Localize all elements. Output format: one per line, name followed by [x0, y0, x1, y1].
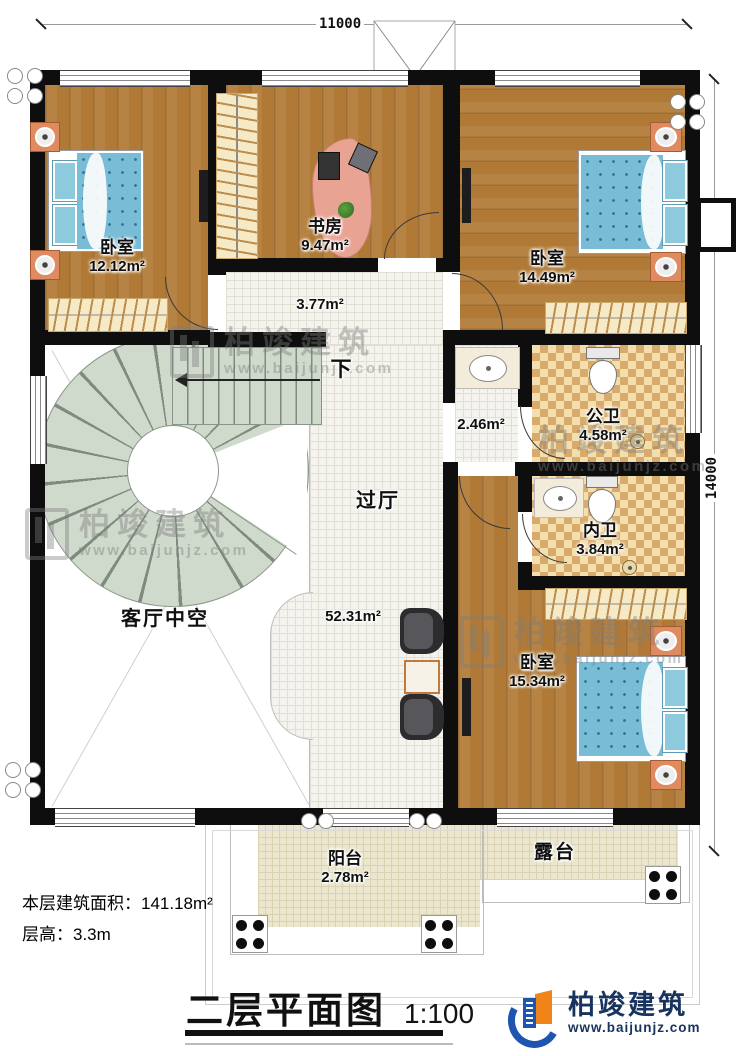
company-url: www.baijunjz.com	[568, 1020, 701, 1035]
room-name: 内卫	[542, 520, 658, 541]
wall-column-pair	[300, 812, 334, 830]
company-logo-icon	[508, 986, 560, 1040]
room-label-bedroom2: 卧室 14.49m²	[487, 248, 607, 288]
window	[685, 345, 702, 433]
bed-icon	[578, 150, 686, 254]
room-label-terrace: 露台	[505, 841, 605, 865]
title-underline-thick	[185, 1030, 443, 1036]
company-logo: 柏竣建筑 www.baijunjz.com	[508, 986, 701, 1040]
room-area: 12.12m²	[57, 258, 177, 277]
toilet-icon	[586, 347, 620, 393]
company-name: 柏竣建筑	[568, 991, 701, 1019]
staircase-straight-flight	[172, 347, 322, 425]
tv-icon	[199, 170, 208, 222]
corner-column	[3, 760, 43, 800]
wall	[443, 476, 458, 808]
stair-direction-arrow	[168, 373, 187, 387]
window	[497, 808, 613, 827]
pillow-icon	[663, 712, 687, 752]
room-label-study: 书房 9.47m²	[265, 216, 385, 256]
room-area: 9.47m²	[265, 237, 385, 256]
nightstand-icon	[30, 250, 60, 280]
balcony-door	[323, 808, 409, 827]
balcony-column	[232, 915, 268, 953]
terrace-column	[645, 866, 681, 904]
room-name: 卧室	[477, 652, 597, 673]
wall-column-pair	[408, 812, 442, 830]
computer-monitor-icon	[318, 152, 340, 180]
wardrobe-icon	[545, 588, 687, 620]
stair-direction-line	[184, 379, 320, 381]
room-name: 卧室	[487, 248, 607, 269]
area-label-hall: 52.31m²	[303, 608, 403, 627]
area-label-upper-hall: 3.77m²	[270, 296, 370, 315]
window	[55, 808, 195, 827]
window	[262, 70, 408, 87]
blanket-fold	[83, 153, 107, 249]
armchair-icon	[400, 694, 444, 740]
corner-column	[668, 92, 706, 132]
floor-plan-page: 11000 14000	[0, 0, 750, 1056]
wardrobe-icon	[48, 298, 168, 332]
wall	[518, 345, 532, 407]
pillow-icon	[53, 161, 77, 201]
room-label-bedroom1: 卧室 12.12m²	[57, 237, 177, 277]
tv-icon	[462, 168, 471, 223]
wall	[208, 332, 326, 347]
balcony-column	[421, 915, 457, 953]
room-area: 3.84m²	[542, 541, 658, 560]
ground-terrace-outline-inner	[212, 830, 693, 998]
tv-icon	[462, 678, 471, 736]
room-name: 卧室	[57, 237, 177, 258]
vanity-counter	[455, 347, 520, 389]
drawing-title: 二层平面图	[186, 980, 386, 1034]
nightstand-icon	[650, 626, 682, 656]
wardrobe-icon	[216, 93, 258, 259]
room-area: 4.58m²	[545, 427, 661, 446]
wall	[443, 462, 458, 476]
window	[495, 70, 640, 87]
room-area: 2.78m²	[295, 869, 395, 888]
toilet-icon	[586, 476, 618, 520]
wall	[443, 85, 460, 272]
top-dimension-label: 11000	[316, 16, 364, 32]
wall	[30, 330, 210, 345]
wall	[685, 70, 700, 825]
blanket-fold	[641, 662, 665, 756]
room-name: 书房	[265, 216, 385, 237]
armchair-icon	[400, 608, 444, 654]
nightstand-icon	[30, 122, 60, 152]
drawing-scale: 1:100	[404, 998, 474, 1030]
floor-area-note: 本层建筑面积：141.18m²	[22, 889, 213, 914]
wall	[518, 562, 532, 576]
hall-void-boundary	[309, 738, 310, 808]
title-underline-thin	[185, 1043, 453, 1045]
room-label-ensuite-bath: 内卫 3.84m²	[542, 520, 658, 560]
wall	[443, 345, 455, 403]
washbasin-icon	[543, 486, 577, 511]
blanket-fold	[641, 155, 665, 249]
room-label-bedroom3: 卧室 15.34m²	[477, 652, 597, 692]
stair-down-label: 下	[326, 357, 356, 383]
wall	[226, 258, 378, 272]
wall	[515, 462, 700, 476]
room-label-living-void: 客厅中空	[95, 607, 235, 632]
room-label-balcony: 阳台 2.78m²	[295, 848, 395, 888]
pillow-icon	[663, 161, 687, 201]
pillow-icon	[663, 205, 687, 245]
vanity-counter	[534, 478, 584, 518]
wall	[518, 476, 532, 512]
pillow-icon	[663, 668, 687, 708]
room-area: 14.49m²	[487, 269, 607, 288]
wardrobe-icon	[545, 302, 687, 334]
floor-drain-icon	[622, 560, 637, 575]
washbasin-icon	[469, 355, 507, 382]
right-wall-niche	[696, 198, 736, 252]
staircase-inner-well	[127, 425, 219, 517]
area-label-vanity: 2.46m²	[431, 416, 531, 435]
room-label-public-bath: 公卫 4.58m²	[545, 406, 661, 446]
side-table-icon	[404, 660, 440, 694]
floor-height-note: 层高：3.3m	[22, 920, 111, 945]
room-name: 阳台	[295, 848, 395, 869]
nightstand-icon	[650, 252, 682, 282]
corner-column	[5, 66, 45, 106]
window	[30, 376, 47, 464]
window	[60, 70, 190, 87]
right-dimension-label: 14000	[704, 454, 720, 502]
room-area: 15.34m²	[477, 673, 597, 692]
room-label-hall: 过厅	[328, 489, 428, 514]
drawing-title-row: 二层平面图 1:100	[186, 980, 474, 1034]
room-name: 公卫	[545, 406, 661, 427]
nightstand-icon	[650, 760, 682, 790]
